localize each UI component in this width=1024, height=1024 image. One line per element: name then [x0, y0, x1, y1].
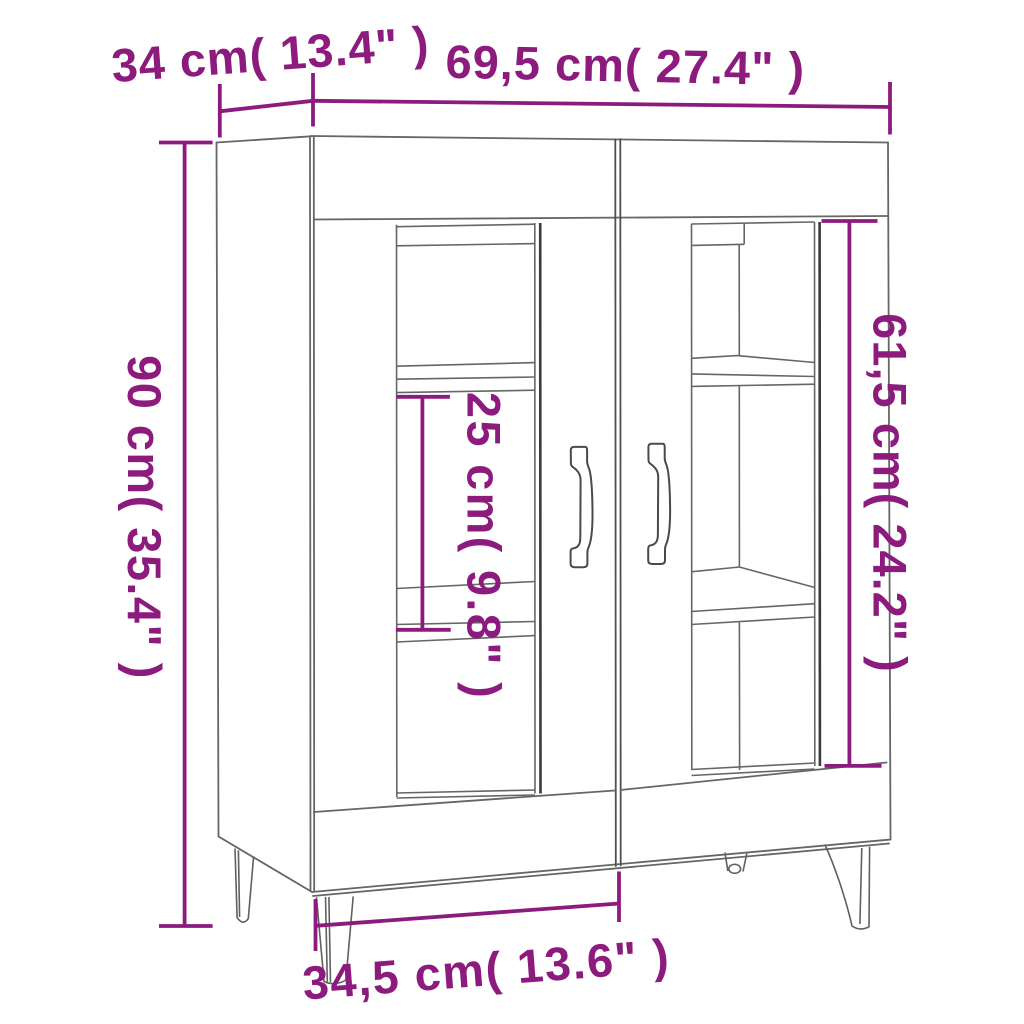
svg-text:61,5 cm( 24.2" ): 61,5 cm( 24.2" ): [864, 313, 917, 673]
svg-text:25 cm( 9.8" ): 25 cm( 9.8" ): [457, 392, 510, 700]
svg-text:69,5 cm( 27.4" ): 69,5 cm( 27.4" ): [445, 35, 806, 96]
svg-text:90 cm( 35.4" ): 90 cm( 35.4" ): [118, 355, 171, 680]
